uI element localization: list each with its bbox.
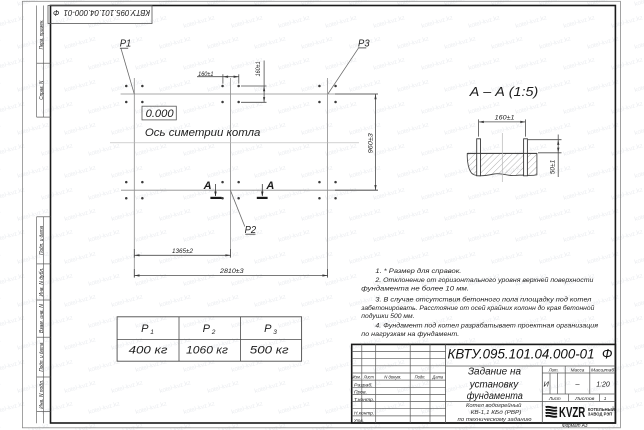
svg-text:kotel-kvz.kz: kotel-kvz.kz [159, 78, 192, 94]
svg-text:kotel-kvz.kz: kotel-kvz.kz [207, 250, 240, 266]
svg-text:Дата: Дата [432, 374, 444, 380]
svg-text:kotel-kvz.kz: kotel-kvz.kz [373, 400, 406, 416]
svg-text:kotel-kvz.kz: kotel-kvz.kz [0, 14, 26, 30]
svg-text:установку: установку [469, 379, 519, 390]
svg-text:kotel-kvz.kz: kotel-kvz.kz [325, 228, 358, 244]
svg-text:kotel-kvz.kz: kotel-kvz.kz [0, 379, 2, 395]
svg-text:kotel-kvz.kz: kotel-kvz.kz [325, 186, 358, 202]
svg-text:kotel-kvz.kz: kotel-kvz.kz [0, 0, 2, 8]
svg-text:Взам. инв. N: Взам. инв. N [39, 304, 45, 333]
svg-text:kotel-kvz.kz: kotel-kvz.kz [111, 121, 144, 137]
svg-text:kotel-kvz.kz: kotel-kvz.kz [0, 422, 2, 430]
svg-text:kotel-kvz.kz: kotel-kvz.kz [41, 314, 74, 330]
svg-text:kotel-kvz.kz: kotel-kvz.kz [183, 400, 216, 416]
svg-text:kotel-kvz.kz: kotel-kvz.kz [349, 207, 382, 223]
svg-text:160±1: 160±1 [198, 71, 214, 78]
svg-text:500 кг: 500 кг [250, 344, 289, 356]
svg-text:kotel-kvz.kz: kotel-kvz.kz [231, 400, 264, 416]
svg-text:И: И [544, 380, 550, 389]
svg-text:А: А [203, 180, 212, 192]
svg-text:–: – [574, 380, 580, 389]
svg-text:КВТУ.095.101.04.000-01 Ф: КВТУ.095.101.04.000-01 Ф [448, 346, 613, 362]
svg-text:kotel-kvz.kz: kotel-kvz.kz [254, 250, 287, 266]
svg-text:kotel-kvz.kz: kotel-kvz.kz [41, 56, 74, 72]
svg-text:kotel-kvz.kz: kotel-kvz.kz [135, 56, 168, 72]
svg-text:kotel-kvz.kz: kotel-kvz.kz [373, 14, 406, 30]
svg-text:kotel-kvz.kz: kotel-kvz.kz [634, 164, 644, 180]
svg-text:Изм.: Изм. [352, 374, 361, 380]
svg-text:kotel-kvz.kz: kotel-kvz.kz [64, 164, 97, 180]
svg-text:kotel-kvz.kz: kotel-kvz.kz [64, 250, 97, 266]
svg-text:Т.контр.: Т.контр. [354, 397, 374, 403]
svg-text:kotel-kvz.kz: kotel-kvz.kz [491, 207, 524, 223]
svg-text:KVZR: KVZR [559, 404, 585, 421]
svg-text:kotel-kvz.kz: kotel-kvz.kz [254, 164, 287, 180]
svg-text:kotel-kvz.kz: kotel-kvz.kz [231, 14, 264, 30]
svg-text:kotel-kvz.kz: kotel-kvz.kz [207, 207, 240, 223]
svg-text:kotel-kvz.kz: kotel-kvz.kz [373, 228, 406, 244]
svg-text:kotel-kvz.kz: kotel-kvz.kz [111, 293, 144, 309]
svg-text:kotel-kvz.kz: kotel-kvz.kz [397, 121, 430, 137]
svg-text:kotel-kvz.kz: kotel-kvz.kz [444, 250, 477, 266]
svg-text:1:20: 1:20 [596, 382, 610, 389]
svg-text:1060 кг: 1060 кг [186, 344, 229, 356]
svg-text:kotel-kvz.kz: kotel-kvz.kz [88, 358, 121, 374]
svg-text:Задание на: Задание на [468, 367, 522, 378]
svg-text:kotel-kvz.kz: kotel-kvz.kz [64, 336, 97, 352]
svg-text:kotel-kvz.kz: kotel-kvz.kz [397, 250, 430, 266]
svg-text:kotel-kvz.kz: kotel-kvz.kz [135, 400, 168, 416]
svg-text:kotel-kvz.kz: kotel-kvz.kz [41, 358, 74, 374]
svg-text:kotel-kvz.kz: kotel-kvz.kz [634, 35, 644, 51]
svg-text:kotel-kvz.kz: kotel-kvz.kz [421, 142, 454, 158]
svg-text:Р 2: Р 2 [203, 323, 216, 336]
svg-text:kotel-kvz.kz: kotel-kvz.kz [207, 379, 240, 395]
svg-text:kotel-kvz.kz: kotel-kvz.kz [135, 228, 168, 244]
svg-text:kotel-kvz.kz: kotel-kvz.kz [111, 250, 144, 266]
svg-text:kotel-kvz.kz: kotel-kvz.kz [88, 100, 121, 116]
svg-text:Подп.: Подп. [415, 374, 426, 380]
svg-text:kotel-kvz.kz: kotel-kvz.kz [325, 400, 358, 416]
svg-text:kotel-kvz.kz: kotel-kvz.kz [325, 100, 358, 116]
svg-text:kotel-kvz.kz: kotel-kvz.kz [421, 56, 454, 72]
svg-text:160±1: 160±1 [255, 61, 262, 76]
svg-text:kotel-kvz.kz: kotel-kvz.kz [41, 272, 74, 288]
svg-text:kotel-kvz.kz: kotel-kvz.kz [183, 228, 216, 244]
svg-text:kotel-kvz.kz: kotel-kvz.kz [111, 207, 144, 223]
svg-text:kotel-kvz.kz: kotel-kvz.kz [159, 35, 192, 51]
svg-text:kotel-kvz.kz: kotel-kvz.kz [349, 121, 382, 137]
svg-text:kotel-kvz.kz: kotel-kvz.kz [491, 250, 524, 266]
svg-text:Ось симетрии котла: Ось симетрии котла [145, 127, 261, 139]
svg-text:kotel-kvz.kz: kotel-kvz.kz [421, 400, 454, 416]
svg-text:2810±3: 2810±3 [219, 268, 244, 275]
svg-text:kotel-kvz.kz: kotel-kvz.kz [183, 272, 216, 288]
svg-text:kotel-kvz.kz: kotel-kvz.kz [88, 142, 121, 158]
svg-text:kotel-kvz.kz: kotel-kvz.kz [373, 56, 406, 72]
svg-text:kotel-kvz.kz: kotel-kvz.kz [17, 422, 50, 430]
svg-text:kotel-kvz.kz: kotel-kvz.kz [0, 293, 2, 309]
svg-text:kotel-kvz.kz: kotel-kvz.kz [88, 314, 121, 330]
svg-text:Утв.: Утв. [354, 418, 364, 424]
svg-text:kotel-kvz.kz: kotel-kvz.kz [254, 35, 287, 51]
svg-text:kotel-kvz.kz: kotel-kvz.kz [278, 142, 311, 158]
svg-text:kotel-kvz.kz: kotel-kvz.kz [421, 186, 454, 202]
svg-text:kotel-kvz.kz: kotel-kvz.kz [325, 142, 358, 158]
svg-text:kotel-kvz.kz: kotel-kvz.kz [278, 228, 311, 244]
svg-text:kotel-kvz.kz: kotel-kvz.kz [0, 186, 26, 202]
svg-text:kotel-kvz.kz: kotel-kvz.kz [183, 100, 216, 116]
svg-text:kotel-kvz.kz: kotel-kvz.kz [468, 228, 501, 244]
svg-text:Котел водогрейный: Котел водогрейный [466, 402, 521, 409]
svg-text:kotel-kvz.kz: kotel-kvz.kz [421, 100, 454, 116]
svg-text:kotel-kvz.kz: kotel-kvz.kz [634, 336, 644, 352]
svg-text:kotel-kvz.kz: kotel-kvz.kz [468, 14, 501, 30]
svg-text:Масштаб: Масштаб [591, 367, 614, 373]
svg-text:1: 1 [604, 396, 607, 402]
svg-text:kotel-kvz.kz: kotel-kvz.kz [0, 56, 26, 72]
svg-text:Инв. N подл.: Инв. N подл. [39, 380, 45, 409]
svg-text:kotel-kvz.kz: kotel-kvz.kz [397, 35, 430, 51]
svg-text:kotel-kvz.kz: kotel-kvz.kz [634, 250, 644, 266]
svg-text:kotel-kvz.kz: kotel-kvz.kz [491, 35, 524, 51]
svg-text:А: А [265, 180, 274, 192]
svg-text:kotel-kvz.kz: kotel-kvz.kz [515, 100, 548, 116]
svg-text:kotel-kvz.kz: kotel-kvz.kz [0, 78, 2, 94]
svg-text:Лит.: Лит. [548, 367, 559, 373]
svg-text:kotel-kvz.kz: kotel-kvz.kz [111, 379, 144, 395]
svg-text:Масса: Масса [571, 367, 585, 373]
svg-text:kotel-kvz.kz: kotel-kvz.kz [88, 400, 121, 416]
svg-text:kotel-kvz.kz: kotel-kvz.kz [135, 186, 168, 202]
svg-text:kotel-kvz.kz: kotel-kvz.kz [539, 250, 572, 266]
svg-text:kotel-kvz.kz: kotel-kvz.kz [0, 358, 26, 374]
svg-text:960±3: 960±3 [367, 133, 374, 153]
svg-text:kotel-kvz.kz: kotel-kvz.kz [278, 14, 311, 30]
svg-text:kotel-kvz.kz: kotel-kvz.kz [444, 121, 477, 137]
svg-text:kotel-kvz.kz: kotel-kvz.kz [563, 228, 596, 244]
svg-text:kotel-kvz.kz: kotel-kvz.kz [88, 186, 121, 202]
svg-text:kotel-kvz.kz: kotel-kvz.kz [183, 56, 216, 72]
svg-text:kotel-kvz.kz: kotel-kvz.kz [539, 121, 572, 137]
svg-text:kotel-kvz.kz: kotel-kvz.kz [41, 100, 74, 116]
svg-text:kotel-kvz.kz: kotel-kvz.kz [301, 121, 334, 137]
svg-text:kotel-kvz.kz: kotel-kvz.kz [468, 186, 501, 202]
svg-text:50±1: 50±1 [549, 159, 556, 174]
svg-text:kotel-kvz.kz: kotel-kvz.kz [64, 78, 97, 94]
svg-text:kotel-kvz.kz: kotel-kvz.kz [41, 142, 74, 158]
svg-text:kotel-kvz.kz: kotel-kvz.kz [278, 100, 311, 116]
svg-text:4. Фундамент под котел разраба: 4. Фундамент под котел разрабатывает про… [375, 321, 598, 329]
svg-text:kotel-kvz.kz: kotel-kvz.kz [421, 228, 454, 244]
svg-text:kotel-kvz.kz: kotel-kvz.kz [563, 100, 596, 116]
svg-text:kotel-kvz.kz: kotel-kvz.kz [231, 142, 264, 158]
svg-text:160±1: 160±1 [495, 115, 515, 122]
svg-text:КВ-1,1 КБд (РВР): КВ-1,1 КБд (РВР) [471, 410, 522, 416]
svg-text:kotel-kvz.kz: kotel-kvz.kz [41, 400, 74, 416]
svg-text:Перв. примен.: Перв. примен. [39, 19, 45, 49]
svg-text:kotel-kvz.kz: kotel-kvz.kz [0, 121, 2, 137]
svg-text:kotel-kvz.kz: kotel-kvz.kz [563, 142, 596, 158]
svg-text:2. Отклонение от горизонтально: 2. Отклонение от горизонтального уровня … [374, 276, 593, 284]
svg-text:kotel-kvz.kz: kotel-kvz.kz [17, 207, 50, 223]
svg-text:kotel-kvz.kz: kotel-kvz.kz [301, 379, 334, 395]
svg-text:kotel-kvz.kz: kotel-kvz.kz [64, 207, 97, 223]
svg-text:kotel-kvz.kz: kotel-kvz.kz [301, 78, 334, 94]
svg-text:kotel-kvz.kz: kotel-kvz.kz [159, 164, 192, 180]
svg-text:kotel-kvz.kz: kotel-kvz.kz [634, 379, 644, 395]
svg-text:kotel-kvz.kz: kotel-kvz.kz [349, 78, 382, 94]
svg-text:kotel-kvz.kz: kotel-kvz.kz [17, 164, 50, 180]
svg-text:kotel-kvz.kz: kotel-kvz.kz [468, 56, 501, 72]
svg-text:А – А (1:5): А – А (1:5) [469, 84, 539, 99]
svg-text:kotel-kvz.kz: kotel-kvz.kz [325, 56, 358, 72]
svg-text:Лист: Лист [363, 374, 374, 380]
svg-text:kotel-kvz.kz: kotel-kvz.kz [207, 164, 240, 180]
svg-text:kotel-kvz.kz: kotel-kvz.kz [0, 272, 26, 288]
svg-text:kotel-kvz.kz: kotel-kvz.kz [254, 207, 287, 223]
svg-text:kotel-kvz.kz: kotel-kvz.kz [17, 121, 50, 137]
svg-text:КВТУ.095.101.04.000-01 Ф: КВТУ.095.101.04.000-01 Ф [53, 8, 150, 17]
svg-text:Лист: Лист [548, 396, 560, 402]
svg-text:kotel-kvz.kz: kotel-kvz.kz [278, 358, 311, 374]
svg-text:kotel-kvz.kz: kotel-kvz.kz [515, 186, 548, 202]
svg-text:kotel-kvz.kz: kotel-kvz.kz [634, 422, 644, 430]
svg-text:kotel-kvz.kz: kotel-kvz.kz [0, 250, 2, 266]
svg-text:фундамента не более 10 мм.: фундамента не более 10 мм. [361, 284, 469, 292]
svg-text:kotel-kvz.kz: kotel-kvz.kz [468, 100, 501, 116]
svg-text:kotel-kvz.kz: kotel-kvz.kz [41, 228, 74, 244]
svg-text:kotel-kvz.kz: kotel-kvz.kz [278, 400, 311, 416]
svg-text:kotel-kvz.kz: kotel-kvz.kz [397, 78, 430, 94]
svg-text:Листов: Листов [574, 396, 595, 402]
svg-text:Формат А3: Формат А3 [562, 423, 588, 429]
svg-text:kotel-kvz.kz: kotel-kvz.kz [634, 0, 644, 8]
svg-text:kotel-kvz.kz: kotel-kvz.kz [88, 228, 121, 244]
svg-text:Подп. и дата: Подп. и дата [39, 343, 45, 372]
svg-text:по нагрузкам на фундамент.: по нагрузкам на фундамент. [361, 330, 459, 338]
svg-text:kotel-kvz.kz: kotel-kvz.kz [301, 35, 334, 51]
svg-text:kotel-kvz.kz: kotel-kvz.kz [111, 164, 144, 180]
svg-text:kotel-kvz.kz: kotel-kvz.kz [563, 14, 596, 30]
svg-text:kotel-kvz.kz: kotel-kvz.kz [301, 164, 334, 180]
svg-text:kotel-kvz.kz: kotel-kvz.kz [444, 207, 477, 223]
svg-text:kotel-kvz.kz: kotel-kvz.kz [0, 400, 26, 416]
svg-text:Справ. N: Справ. N [39, 80, 45, 99]
svg-text:kotel-kvz.kz: kotel-kvz.kz [301, 336, 334, 352]
svg-text:0.000: 0.000 [146, 108, 175, 120]
svg-text:kotel-kvz.kz: kotel-kvz.kz [207, 35, 240, 51]
svg-text:kotel-kvz.kz: kotel-kvz.kz [373, 100, 406, 116]
svg-text:kotel-kvz.kz: kotel-kvz.kz [159, 207, 192, 223]
svg-text:kotel-kvz.kz: kotel-kvz.kz [0, 314, 26, 330]
svg-text:kotel-kvz.kz: kotel-kvz.kz [278, 56, 311, 72]
svg-text:kotel-kvz.kz: kotel-kvz.kz [0, 228, 26, 244]
svg-text:kotel-kvz.kz: kotel-kvz.kz [135, 358, 168, 374]
svg-text:Подп. и дата: Подп. и дата [39, 226, 45, 255]
svg-text:kotel-kvz.kz: kotel-kvz.kz [278, 272, 311, 288]
svg-text:kotel-kvz.kz: kotel-kvz.kz [515, 14, 548, 30]
svg-text:kotel-kvz.kz: kotel-kvz.kz [634, 78, 644, 94]
svg-text:400 кг: 400 кг [129, 344, 168, 356]
svg-text:по техническому заданию: по техническому заданию [458, 417, 532, 423]
svg-text:kotel-kvz.kz: kotel-kvz.kz [135, 142, 168, 158]
svg-text:kotel-kvz.kz: kotel-kvz.kz [41, 186, 74, 202]
svg-text:kotel-kvz.kz: kotel-kvz.kz [64, 121, 97, 137]
svg-text:kotel-kvz.kz: kotel-kvz.kz [325, 272, 358, 288]
svg-text:N докум.: N докум. [384, 374, 401, 380]
svg-text:kotel-kvz.kz: kotel-kvz.kz [231, 358, 264, 374]
svg-text:фундамента: фундамента [467, 390, 523, 402]
svg-text:kotel-kvz.kz: kotel-kvz.kz [183, 358, 216, 374]
svg-text:kotel-kvz.kz: kotel-kvz.kz [301, 250, 334, 266]
svg-text:kotel-kvz.kz: kotel-kvz.kz [254, 293, 287, 309]
svg-text:kotel-kvz.kz: kotel-kvz.kz [0, 207, 2, 223]
svg-text:kotel-kvz.kz: kotel-kvz.kz [515, 228, 548, 244]
svg-text:kotel-kvz.kz: kotel-kvz.kz [444, 35, 477, 51]
svg-text:kotel-kvz.kz: kotel-kvz.kz [135, 272, 168, 288]
svg-text:kotel-kvz.kz: kotel-kvz.kz [349, 250, 382, 266]
svg-text:kotel-kvz.kz: kotel-kvz.kz [64, 379, 97, 395]
svg-text:kotel-kvz.kz: kotel-kvz.kz [254, 379, 287, 395]
svg-text:kotel-kvz.kz: kotel-kvz.kz [64, 35, 97, 51]
svg-text:kotel-kvz.kz: kotel-kvz.kz [539, 207, 572, 223]
svg-text:kotel-kvz.kz: kotel-kvz.kz [183, 14, 216, 30]
svg-text:kotel-kvz.kz: kotel-kvz.kz [207, 293, 240, 309]
svg-text:kotel-kvz.kz: kotel-kvz.kz [0, 336, 2, 352]
svg-text:3. В случае отсутствия бетонно: 3. В случае отсутствия бетонного пола пл… [375, 295, 591, 303]
svg-text:kotel-kvz.kz: kotel-kvz.kz [325, 14, 358, 30]
svg-text:kotel-kvz.kz: kotel-kvz.kz [421, 14, 454, 30]
svg-text:kotel-kvz.kz: kotel-kvz.kz [349, 164, 382, 180]
svg-text:Р 3: Р 3 [264, 323, 277, 336]
svg-text:kotel-kvz.kz: kotel-kvz.kz [397, 207, 430, 223]
svg-text:kotel-kvz.kz: kotel-kvz.kz [183, 142, 216, 158]
svg-text:kotel-kvz.kz: kotel-kvz.kz [301, 293, 334, 309]
svg-text:kotel-kvz.kz: kotel-kvz.kz [159, 379, 192, 395]
svg-text:kotel-kvz.kz: kotel-kvz.kz [373, 186, 406, 202]
svg-text:kotel-kvz.kz: kotel-kvz.kz [634, 121, 644, 137]
svg-text:kotel-kvz.kz: kotel-kvz.kz [301, 207, 334, 223]
svg-text:kotel-kvz.kz: kotel-kvz.kz [634, 207, 644, 223]
svg-text:kotel-kvz.kz: kotel-kvz.kz [0, 142, 26, 158]
svg-text:kotel-kvz.kz: kotel-kvz.kz [539, 35, 572, 51]
svg-text:kotel-kvz.kz: kotel-kvz.kz [231, 186, 264, 202]
svg-text:kotel-kvz.kz: kotel-kvz.kz [278, 186, 311, 202]
svg-text:Н.контр.: Н.контр. [354, 411, 374, 417]
svg-text:kotel-kvz.kz: kotel-kvz.kz [0, 164, 2, 180]
svg-text:kotel-kvz.kz: kotel-kvz.kz [539, 78, 572, 94]
svg-text:kotel-kvz.kz: kotel-kvz.kz [0, 35, 2, 51]
svg-text:kotel-kvz.kz: kotel-kvz.kz [397, 164, 430, 180]
svg-text:kotel-kvz.kz: kotel-kvz.kz [88, 272, 121, 288]
svg-text:ЗАВОД РЭП: ЗАВОД РЭП [588, 412, 613, 417]
svg-text:1365±2: 1365±2 [172, 248, 193, 255]
svg-text:Пров.: Пров. [354, 390, 367, 396]
svg-text:kotel-kvz.kz: kotel-kvz.kz [634, 293, 644, 309]
svg-text:kotel-kvz.kz: kotel-kvz.kz [159, 293, 192, 309]
svg-text:kotel-kvz.kz: kotel-kvz.kz [373, 142, 406, 158]
svg-text:Разраб.: Разраб. [354, 382, 373, 388]
svg-text:подушки 500 мм.: подушки 500 мм. [361, 312, 414, 320]
svg-text:Инв. N дубл.: Инв. N дубл. [39, 268, 45, 297]
svg-text:kotel-kvz.kz: kotel-kvz.kz [491, 121, 524, 137]
svg-text:забетонировать. Расстояние от: забетонировать. Расстояние от осей крайн… [360, 304, 594, 312]
svg-text:1. * Размер для справок.: 1. * Размер для справок. [375, 267, 461, 275]
svg-text:kotel-kvz.kz: kotel-kvz.kz [64, 293, 97, 309]
svg-text:kotel-kvz.kz: kotel-kvz.kz [0, 100, 26, 116]
svg-text:kotel-kvz.kz: kotel-kvz.kz [515, 56, 548, 72]
svg-text:kotel-kvz.kz: kotel-kvz.kz [563, 56, 596, 72]
svg-text:kotel-kvz.kz: kotel-kvz.kz [88, 56, 121, 72]
svg-text:kotel-kvz.kz: kotel-kvz.kz [325, 314, 358, 330]
svg-text:kotel-kvz.kz: kotel-kvz.kz [563, 186, 596, 202]
